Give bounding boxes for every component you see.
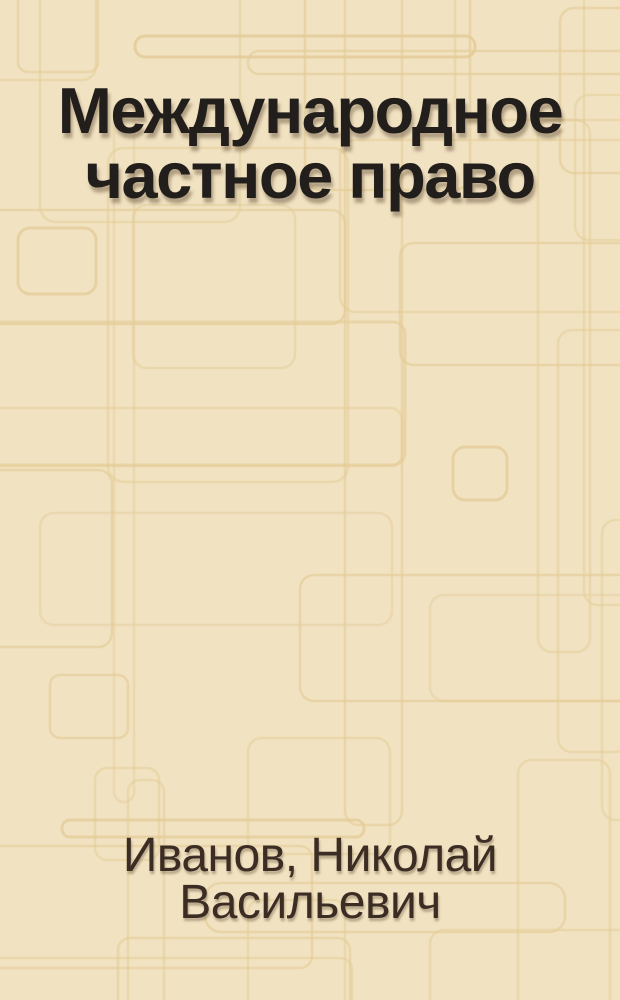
book-title-text: Международное частное право: [38, 78, 583, 208]
book-author: Иванов, Николай Васильевич: [0, 832, 620, 926]
book-cover: Международное частное право Иванов, Нико…: [0, 0, 620, 1000]
book-title: Международное частное право: [0, 78, 620, 208]
book-author-text: Иванов, Николай Васильевич: [85, 832, 535, 926]
